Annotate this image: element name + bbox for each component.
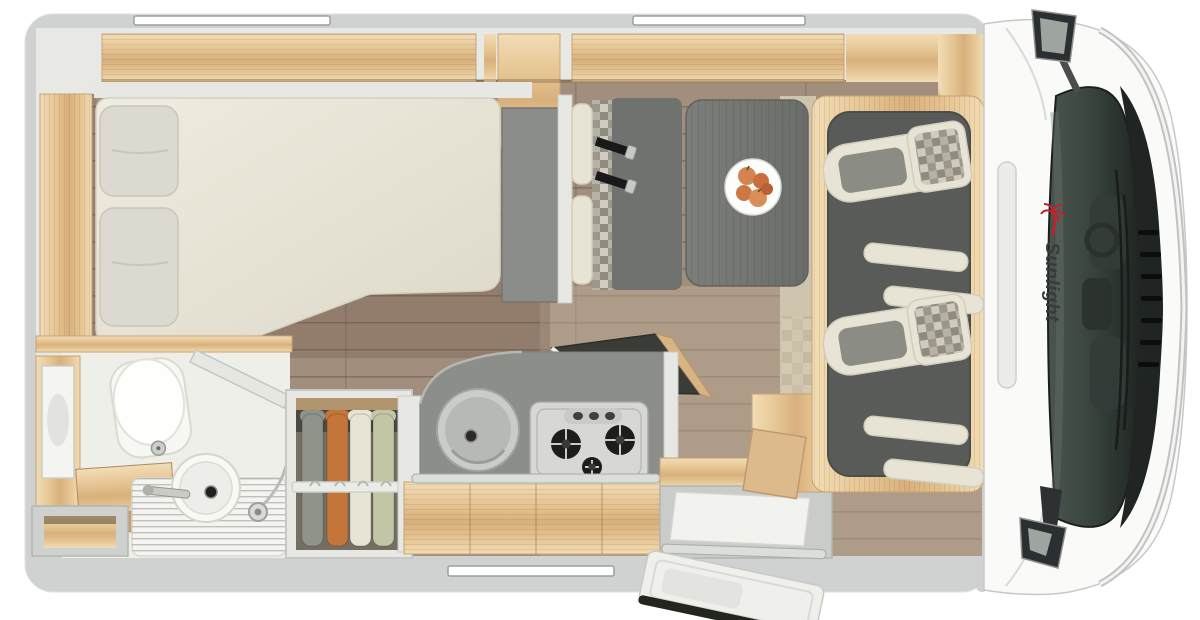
pillow-bottom: [100, 208, 178, 326]
headrest-checkered: [914, 301, 966, 359]
window-top-right: [633, 16, 805, 25]
rear-wardrobe-grain: [40, 94, 92, 336]
shower-head-center: [255, 509, 262, 516]
wardrobe-back-wood: [296, 398, 402, 410]
mirror-reflection: [47, 394, 69, 446]
cabinet-sliver: [484, 34, 496, 82]
floorplan-svg: Sunlight: [0, 0, 1200, 620]
garment: [350, 414, 371, 546]
bed-side-panel: [502, 108, 558, 302]
entry-step: [670, 492, 810, 546]
toilet: [107, 354, 194, 460]
stove-knob: [573, 412, 583, 420]
bathroom: [32, 336, 292, 558]
garment: [327, 414, 348, 546]
dash-console: [1082, 278, 1112, 330]
bench-backrest-checkered: [592, 100, 612, 290]
vent-slat: [1140, 252, 1161, 257]
overhead-cabinet-bed-grain: [102, 34, 476, 82]
vent-slat: [1138, 362, 1159, 367]
vent-slat: [1141, 274, 1162, 279]
bathroom-top-wall: [36, 336, 292, 352]
cab-seat-area: [812, 96, 985, 492]
wood-panel-open: [743, 429, 806, 499]
fruit-item: [761, 183, 773, 195]
kitchen-handle-rail: [412, 474, 660, 483]
stove-knob: [589, 412, 599, 420]
stove: [530, 402, 648, 482]
corner-wall-rear-top: [36, 28, 102, 94]
dinette-bench: [610, 98, 682, 290]
garment: [373, 414, 394, 546]
stove-knob: [605, 412, 615, 420]
wardrobe: [286, 390, 412, 558]
overhead-cabinet-dinette-grain: [572, 34, 844, 82]
motorhome-floorplan: Sunlight: [0, 0, 1200, 620]
vent-slat: [1140, 340, 1161, 345]
sink-drain: [465, 430, 477, 442]
bench-cushion-bottom: [572, 196, 592, 284]
cab-front: Sunlight: [984, 10, 1187, 595]
garment: [302, 414, 323, 546]
vent-slat: [1141, 296, 1162, 301]
body-groove: [998, 162, 1016, 388]
burner-cap: [562, 440, 571, 449]
entry-open-panel: [743, 429, 806, 499]
brand-logo-text: Sunlight: [1041, 242, 1062, 322]
dinette: [572, 98, 808, 290]
hanging-clothes: [300, 410, 396, 546]
bench-cushion-top: [572, 104, 592, 184]
vent-slat: [1141, 318, 1162, 323]
partition-bed-dinette: [558, 95, 572, 303]
burner-cap: [589, 464, 596, 471]
bath-bench-shadow: [44, 516, 116, 524]
headrest-checkered: [914, 128, 966, 186]
window-bottom: [448, 566, 614, 576]
bed-head-shelf: [94, 82, 532, 98]
burner-cap: [616, 436, 625, 445]
washbasin-drain: [205, 486, 217, 498]
mirror-glass: [1040, 18, 1068, 54]
window-top-left: [134, 16, 330, 25]
vent-slat: [1138, 230, 1159, 235]
